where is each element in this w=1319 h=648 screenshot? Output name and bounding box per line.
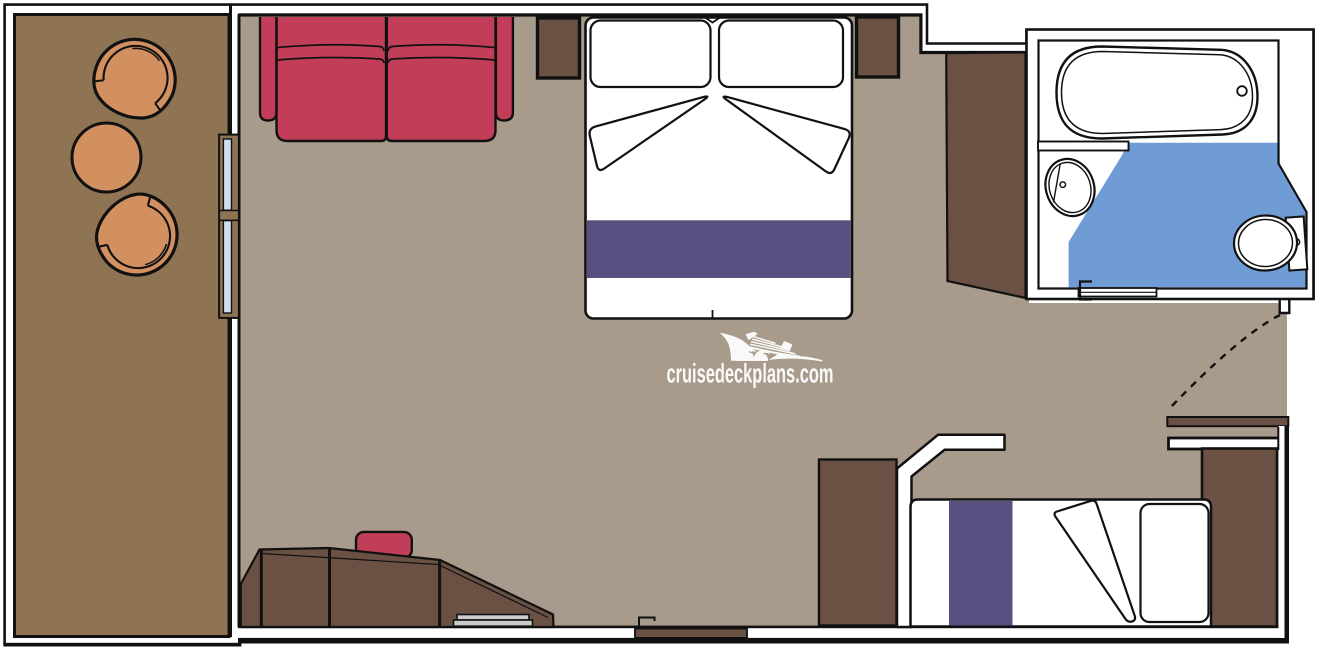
- svg-text:cruisedeckplans.com: cruisedeckplans.com: [667, 358, 834, 388]
